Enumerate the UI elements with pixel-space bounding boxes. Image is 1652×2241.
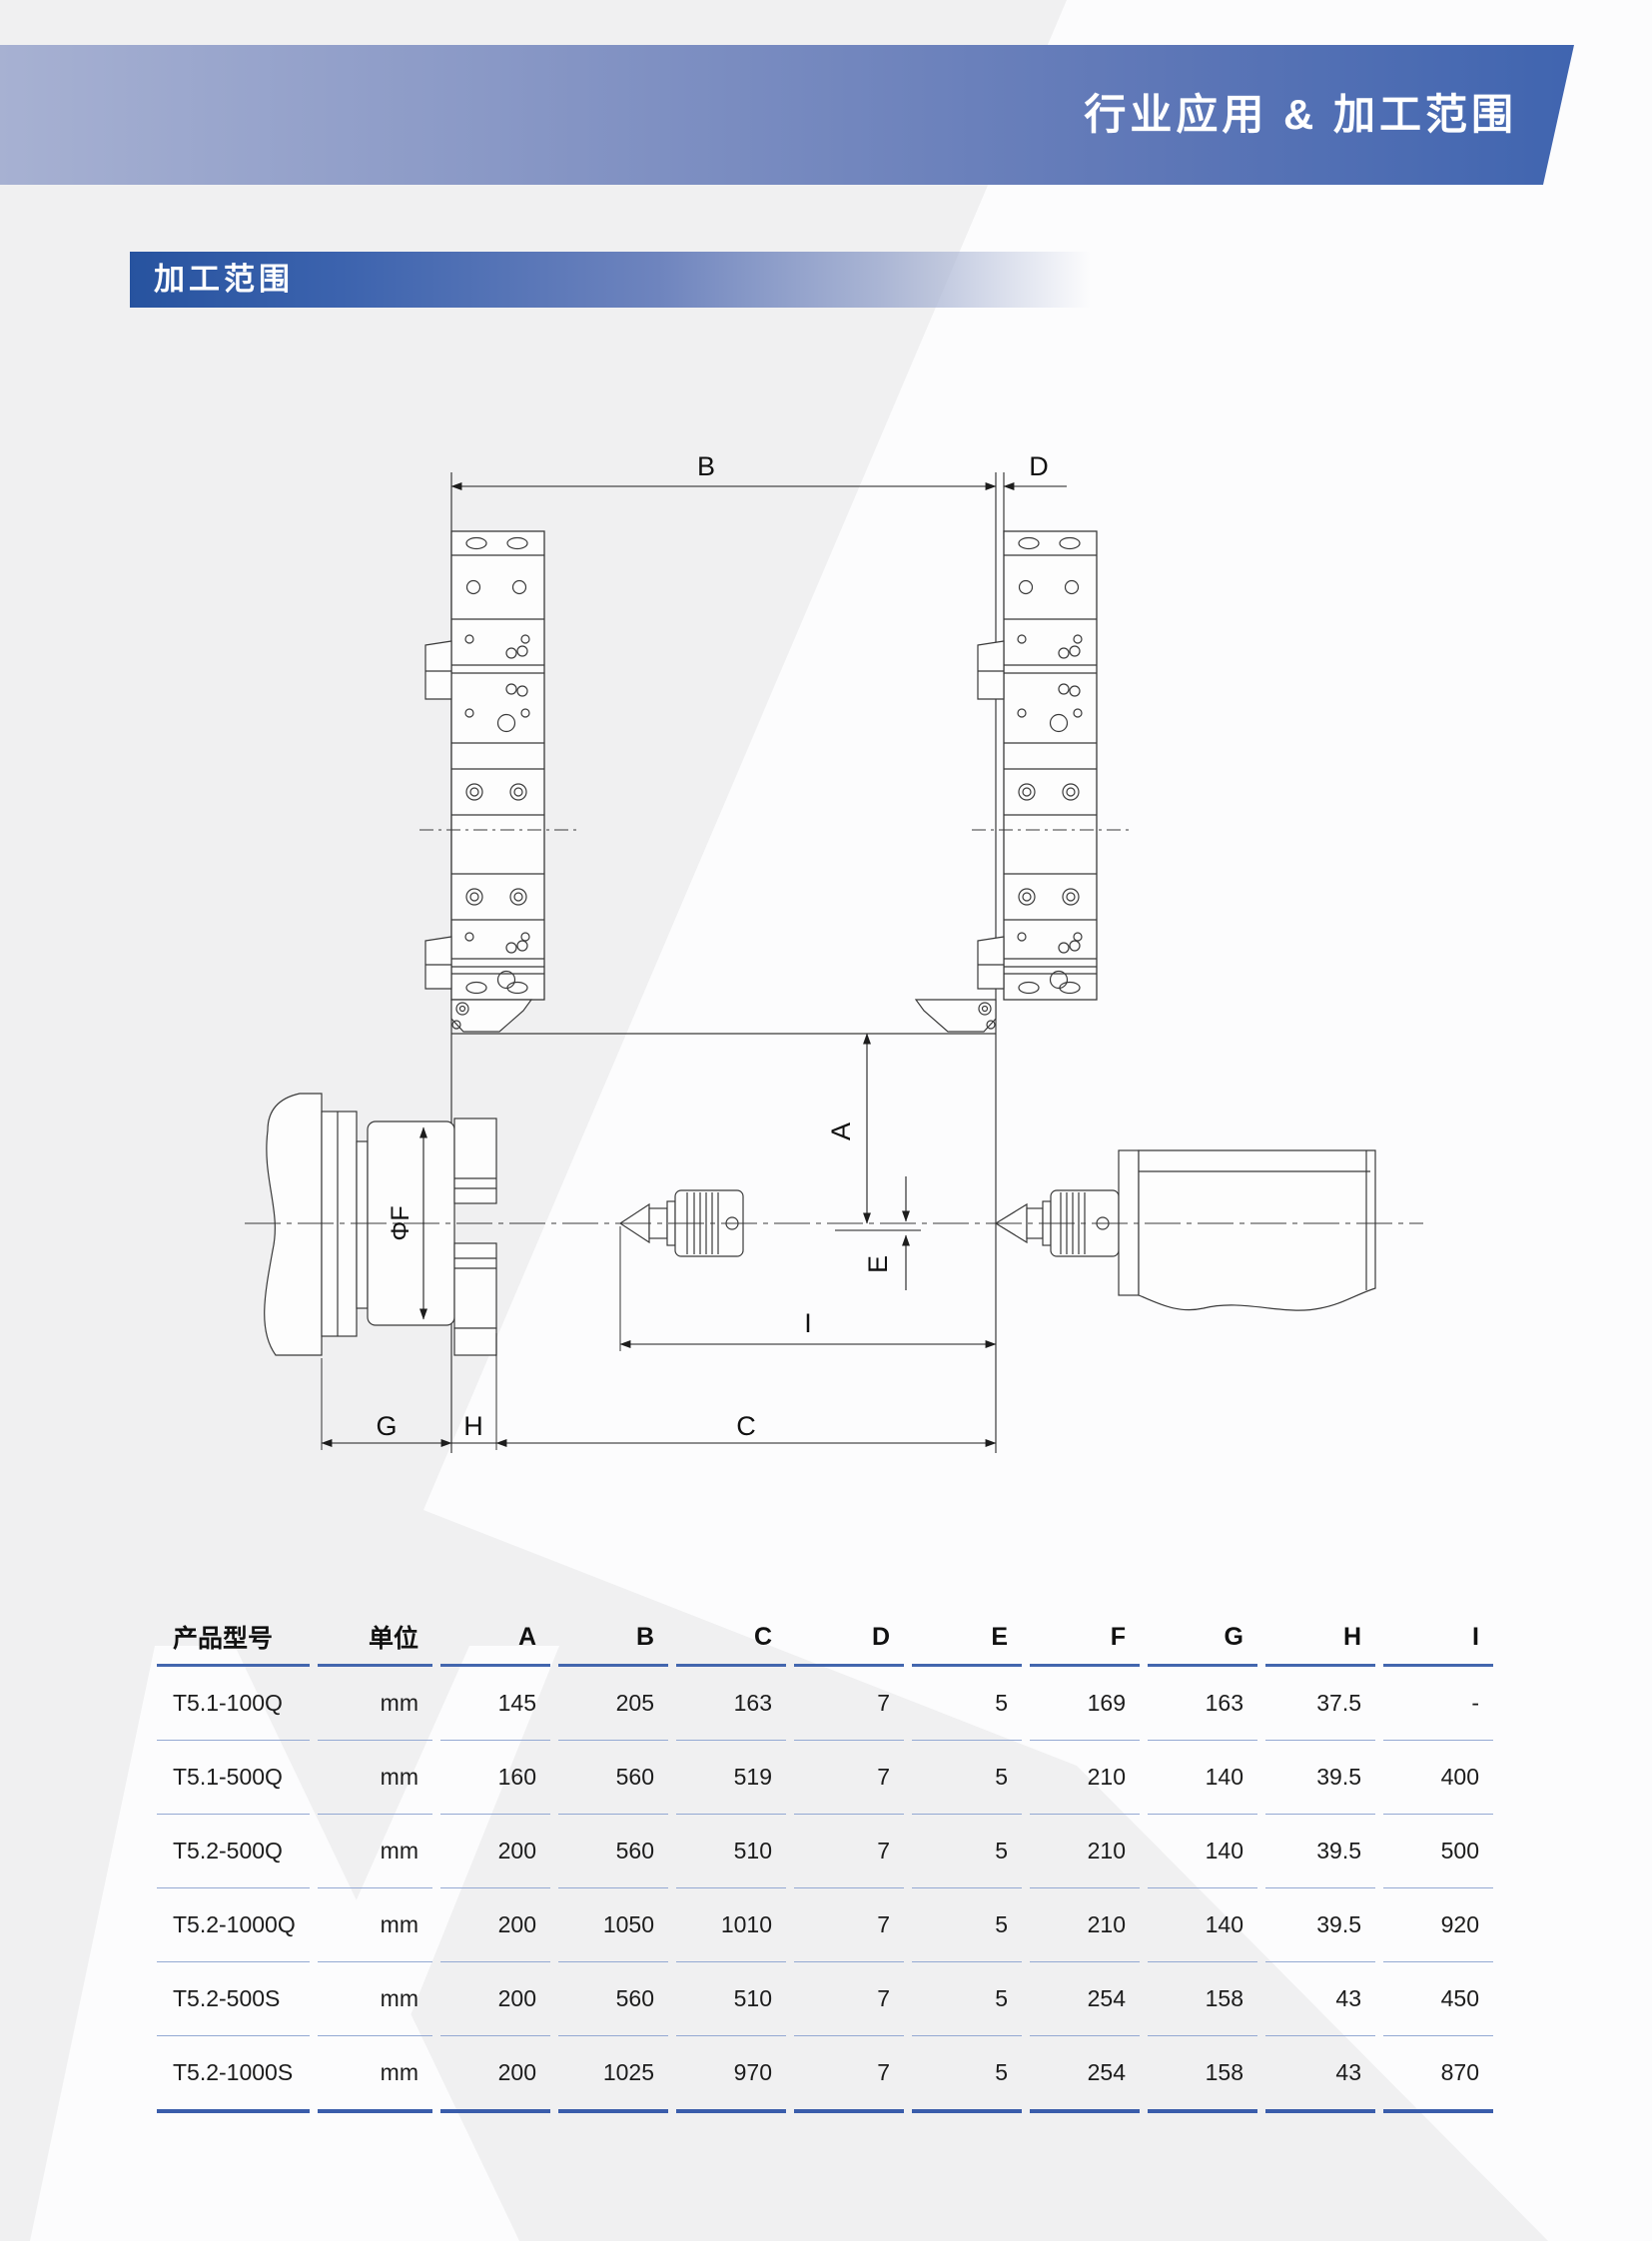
spindle-housing [265,1094,368,1355]
table-cell-1-5: 7 [794,1741,904,1815]
dim-label-h: H [463,1411,483,1441]
table-cell-3-1: mm [318,1888,432,1962]
table-cell-1-2: 160 [440,1741,550,1815]
table-row-2-model: T5.2-500Q [157,1815,310,1888]
left-turret-rail [419,531,576,1000]
table-header-8: G [1148,1610,1257,1667]
table-cell-0-9: 37.5 [1265,1667,1375,1741]
table-row-0-model: T5.1-100Q [157,1667,310,1741]
table-cell-5-9: 43 [1265,2036,1375,2113]
table-cell-1-9: 39.5 [1265,1741,1375,1815]
table-cell-4-9: 43 [1265,1962,1375,2036]
table-header-5: D [794,1610,904,1667]
table-cell-0-3: 205 [558,1667,668,1741]
table-cell-3-5: 7 [794,1888,904,1962]
table-cell-2-4: 510 [676,1815,786,1888]
table-header-7: F [1030,1610,1140,1667]
dim-label-i: I [804,1308,812,1338]
table-cell-5-4: 970 [676,2036,786,2113]
section-title: 加工范围 [154,252,294,308]
table-row-3-model: T5.2-1000Q [157,1888,310,1962]
table-cell-2-3: 560 [558,1815,668,1888]
table-cell-0-5: 7 [794,1667,904,1741]
table-cell-3-3: 1050 [558,1888,668,1962]
table-cell-0-1: mm [318,1667,432,1741]
dim-label-c: C [736,1411,756,1441]
table-cell-0-10: - [1383,1667,1493,1741]
table-cell-4-6: 5 [912,1962,1022,2036]
table-cell-2-5: 7 [794,1815,904,1888]
tailstock-body [1119,1150,1375,1310]
section-title-bar: 加工范围 [130,252,1091,308]
right-tool-holder [916,1000,996,1032]
table-cell-5-5: 7 [794,2036,904,2113]
dim-label-g: G [376,1411,397,1441]
table-cell-3-10: 920 [1383,1888,1493,1962]
table-cell-5-7: 254 [1030,2036,1140,2113]
table-cell-4-10: 450 [1383,1962,1493,2036]
table-cell-1-4: 519 [676,1741,786,1815]
table-cell-4-2: 200 [440,1962,550,2036]
table-cell-0-4: 163 [676,1667,786,1741]
table-header-4: C [676,1610,786,1667]
table-cell-2-7: 210 [1030,1815,1140,1888]
table-cell-5-10: 870 [1383,2036,1493,2113]
table-cell-2-10: 500 [1383,1815,1493,1888]
table-cell-1-1: mm [318,1741,432,1815]
spec-table: 产品型号单位ABCDEFGHIT5.1-100Qmm14520516375169… [157,1610,1494,2113]
table-cell-1-10: 400 [1383,1741,1493,1815]
table-cell-3-4: 1010 [676,1888,786,1962]
dim-label-f: ΦF [387,1205,414,1240]
page-title: 行业应用 & 加工范围 [1084,45,1517,185]
table-cell-1-3: 560 [558,1741,668,1815]
header-banner: 行业应用 & 加工范围 [0,45,1652,185]
table-cell-3-2: 200 [440,1888,550,1962]
table-cell-3-8: 140 [1148,1888,1257,1962]
table-header-0: 产品型号 [157,1610,310,1667]
table-cell-0-6: 5 [912,1667,1022,1741]
table-cell-2-2: 200 [440,1815,550,1888]
table-cell-0-2: 145 [440,1667,550,1741]
table-cell-2-9: 39.5 [1265,1815,1375,1888]
table-row-4-model: T5.2-500S [157,1962,310,2036]
table-row-1-model: T5.1-500Q [157,1741,310,1815]
table-header-6: E [912,1610,1022,1667]
table-cell-5-2: 200 [440,2036,550,2113]
table-cell-4-4: 510 [676,1962,786,2036]
table-header-9: H [1265,1610,1375,1667]
table-cell-2-8: 140 [1148,1815,1257,1888]
table-cell-0-7: 169 [1030,1667,1140,1741]
table-cell-4-5: 7 [794,1962,904,2036]
dim-label-d: D [1029,451,1049,481]
table-cell-0-8: 163 [1148,1667,1257,1741]
table-cell-1-6: 5 [912,1741,1022,1815]
table-cell-3-9: 39.5 [1265,1888,1375,1962]
table-cell-4-7: 254 [1030,1962,1140,2036]
table-header-1: 单位 [318,1610,432,1667]
table-cell-4-8: 158 [1148,1962,1257,2036]
dim-label-b: B [697,451,715,481]
table-cell-1-7: 210 [1030,1741,1140,1815]
dim-label-a: A [826,1122,856,1140]
table-cell-5-3: 1025 [558,2036,668,2113]
table-header-3: B [558,1610,668,1667]
table-cell-2-6: 5 [912,1815,1022,1888]
table-cell-3-6: 5 [912,1888,1022,1962]
left-tool-holder [451,1000,531,1032]
table-cell-5-8: 158 [1148,2036,1257,2113]
dim-label-e: E [863,1255,893,1273]
table-row-5-model: T5.2-1000S [157,2036,310,2113]
table-cell-4-3: 560 [558,1962,668,2036]
table-cell-3-7: 210 [1030,1888,1140,1962]
table-header-10: I [1383,1610,1493,1667]
table-cell-4-1: mm [318,1962,432,2036]
table-cell-5-6: 5 [912,2036,1022,2113]
table-cell-2-1: mm [318,1815,432,1888]
table-cell-1-8: 140 [1148,1741,1257,1815]
table-header-2: A [440,1610,550,1667]
table-cell-5-1: mm [318,2036,432,2113]
